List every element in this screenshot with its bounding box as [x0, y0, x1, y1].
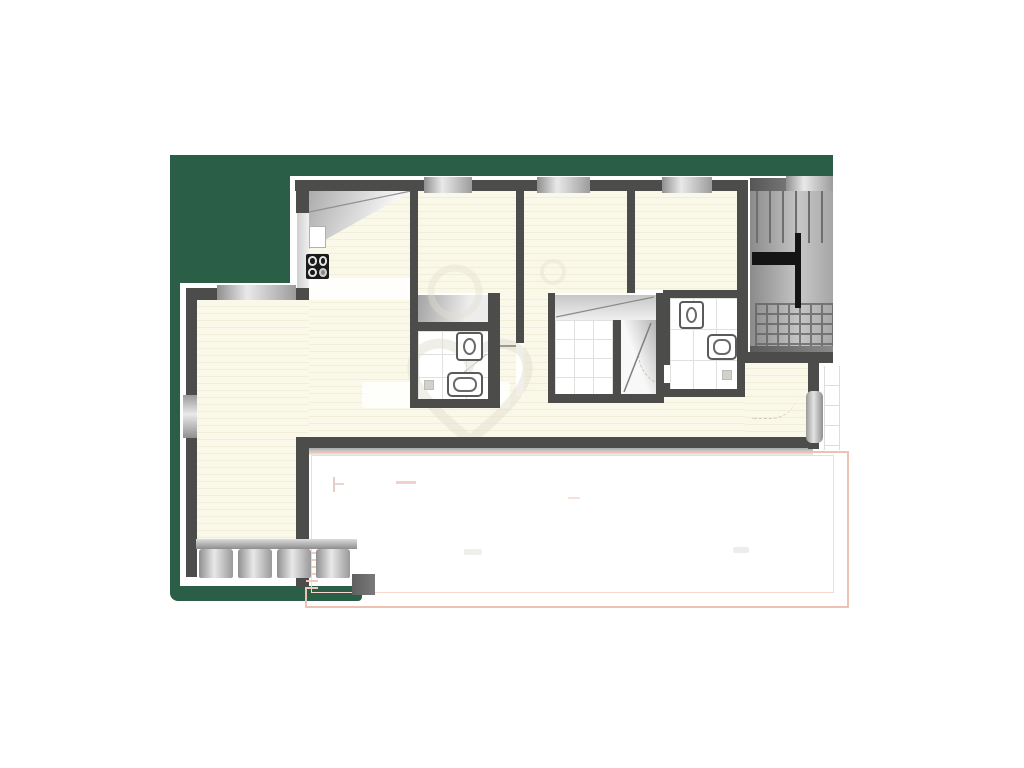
sink-icon [447, 372, 483, 397]
window-top-2 [537, 177, 590, 193]
wall-under-stairs [745, 352, 833, 363]
terrace-mark-tick [335, 483, 344, 485]
stair-handrail-vertical [795, 233, 801, 308]
site-area-left-column [170, 155, 180, 592]
sink-icon [707, 334, 737, 360]
bathroom1-door-line [500, 345, 516, 347]
stove-icon [306, 254, 329, 279]
bedroom-3-floor [635, 191, 737, 290]
floor-drain [722, 370, 732, 380]
window-top-3 [662, 177, 712, 193]
toilet-icon [456, 332, 483, 361]
partition-bedroom1 [410, 191, 418, 407]
stair-treads [756, 191, 832, 243]
terrace-mark-smudge [733, 547, 749, 553]
window-top-1 [424, 177, 472, 193]
stove-burner [308, 268, 317, 278]
railing-end-block [352, 574, 375, 595]
living-room-floor [197, 300, 309, 543]
site-area-topleft-block [170, 155, 290, 283]
bedroom-2-side-strip [524, 293, 548, 402]
showerroom-left-wall [548, 293, 555, 402]
balcony-balusters [199, 549, 357, 578]
terrace-mark-smudge [464, 549, 482, 555]
stove-burner [308, 256, 317, 266]
floor-plan-canvas [0, 0, 1024, 768]
bathroom2-top-wall [663, 290, 745, 298]
toilet-icon [679, 301, 704, 329]
terrace-mark-f [333, 477, 345, 492]
partition-bedroom2 [516, 191, 524, 343]
showerroom-mid-wall [613, 320, 621, 394]
showerroom-tile-floor [555, 320, 613, 394]
kitchen-left-wall [296, 180, 309, 213]
entry-door [806, 391, 823, 443]
bathroom2-bottom-wall [663, 389, 745, 397]
bathroom1-bottom-wall [410, 399, 500, 408]
bathroom2-left-wall [663, 290, 670, 365]
stove-burner [319, 268, 328, 278]
bathroom1-right-wall [488, 293, 500, 407]
baluster [199, 549, 233, 578]
exterior-ladder-marks [824, 366, 840, 450]
staircase-top-window [786, 176, 833, 191]
kitchen-counter-bottom [309, 278, 410, 300]
window-living-top [217, 285, 296, 300]
baluster [277, 549, 311, 578]
balcony-railing-top-bar [196, 539, 357, 549]
bedroom-2-floor [524, 191, 627, 293]
window-left [183, 395, 197, 438]
stairwell-wall [737, 180, 748, 362]
terrace-outline-inner [311, 455, 834, 593]
stair-hatch-grid [755, 303, 833, 351]
kitchen-sink-icon [309, 226, 326, 248]
stair-handrail-horizontal [752, 252, 799, 265]
showerroom-bottom-wall [548, 394, 664, 403]
baluster [316, 549, 350, 578]
bathroom1-shower-shade [418, 295, 488, 322]
showerroom-top-shade [555, 295, 656, 320]
entry-right-wall [808, 363, 819, 393]
stove-burner [319, 256, 328, 266]
bedroom-1-floor [418, 191, 516, 293]
baluster [238, 549, 272, 578]
terrace-mark-dash [396, 481, 416, 484]
floor-drain [424, 380, 434, 390]
corridor-bottom-wall [296, 437, 813, 448]
partition-bedroom3 [627, 191, 635, 293]
terrace-mark-dash [568, 497, 580, 499]
